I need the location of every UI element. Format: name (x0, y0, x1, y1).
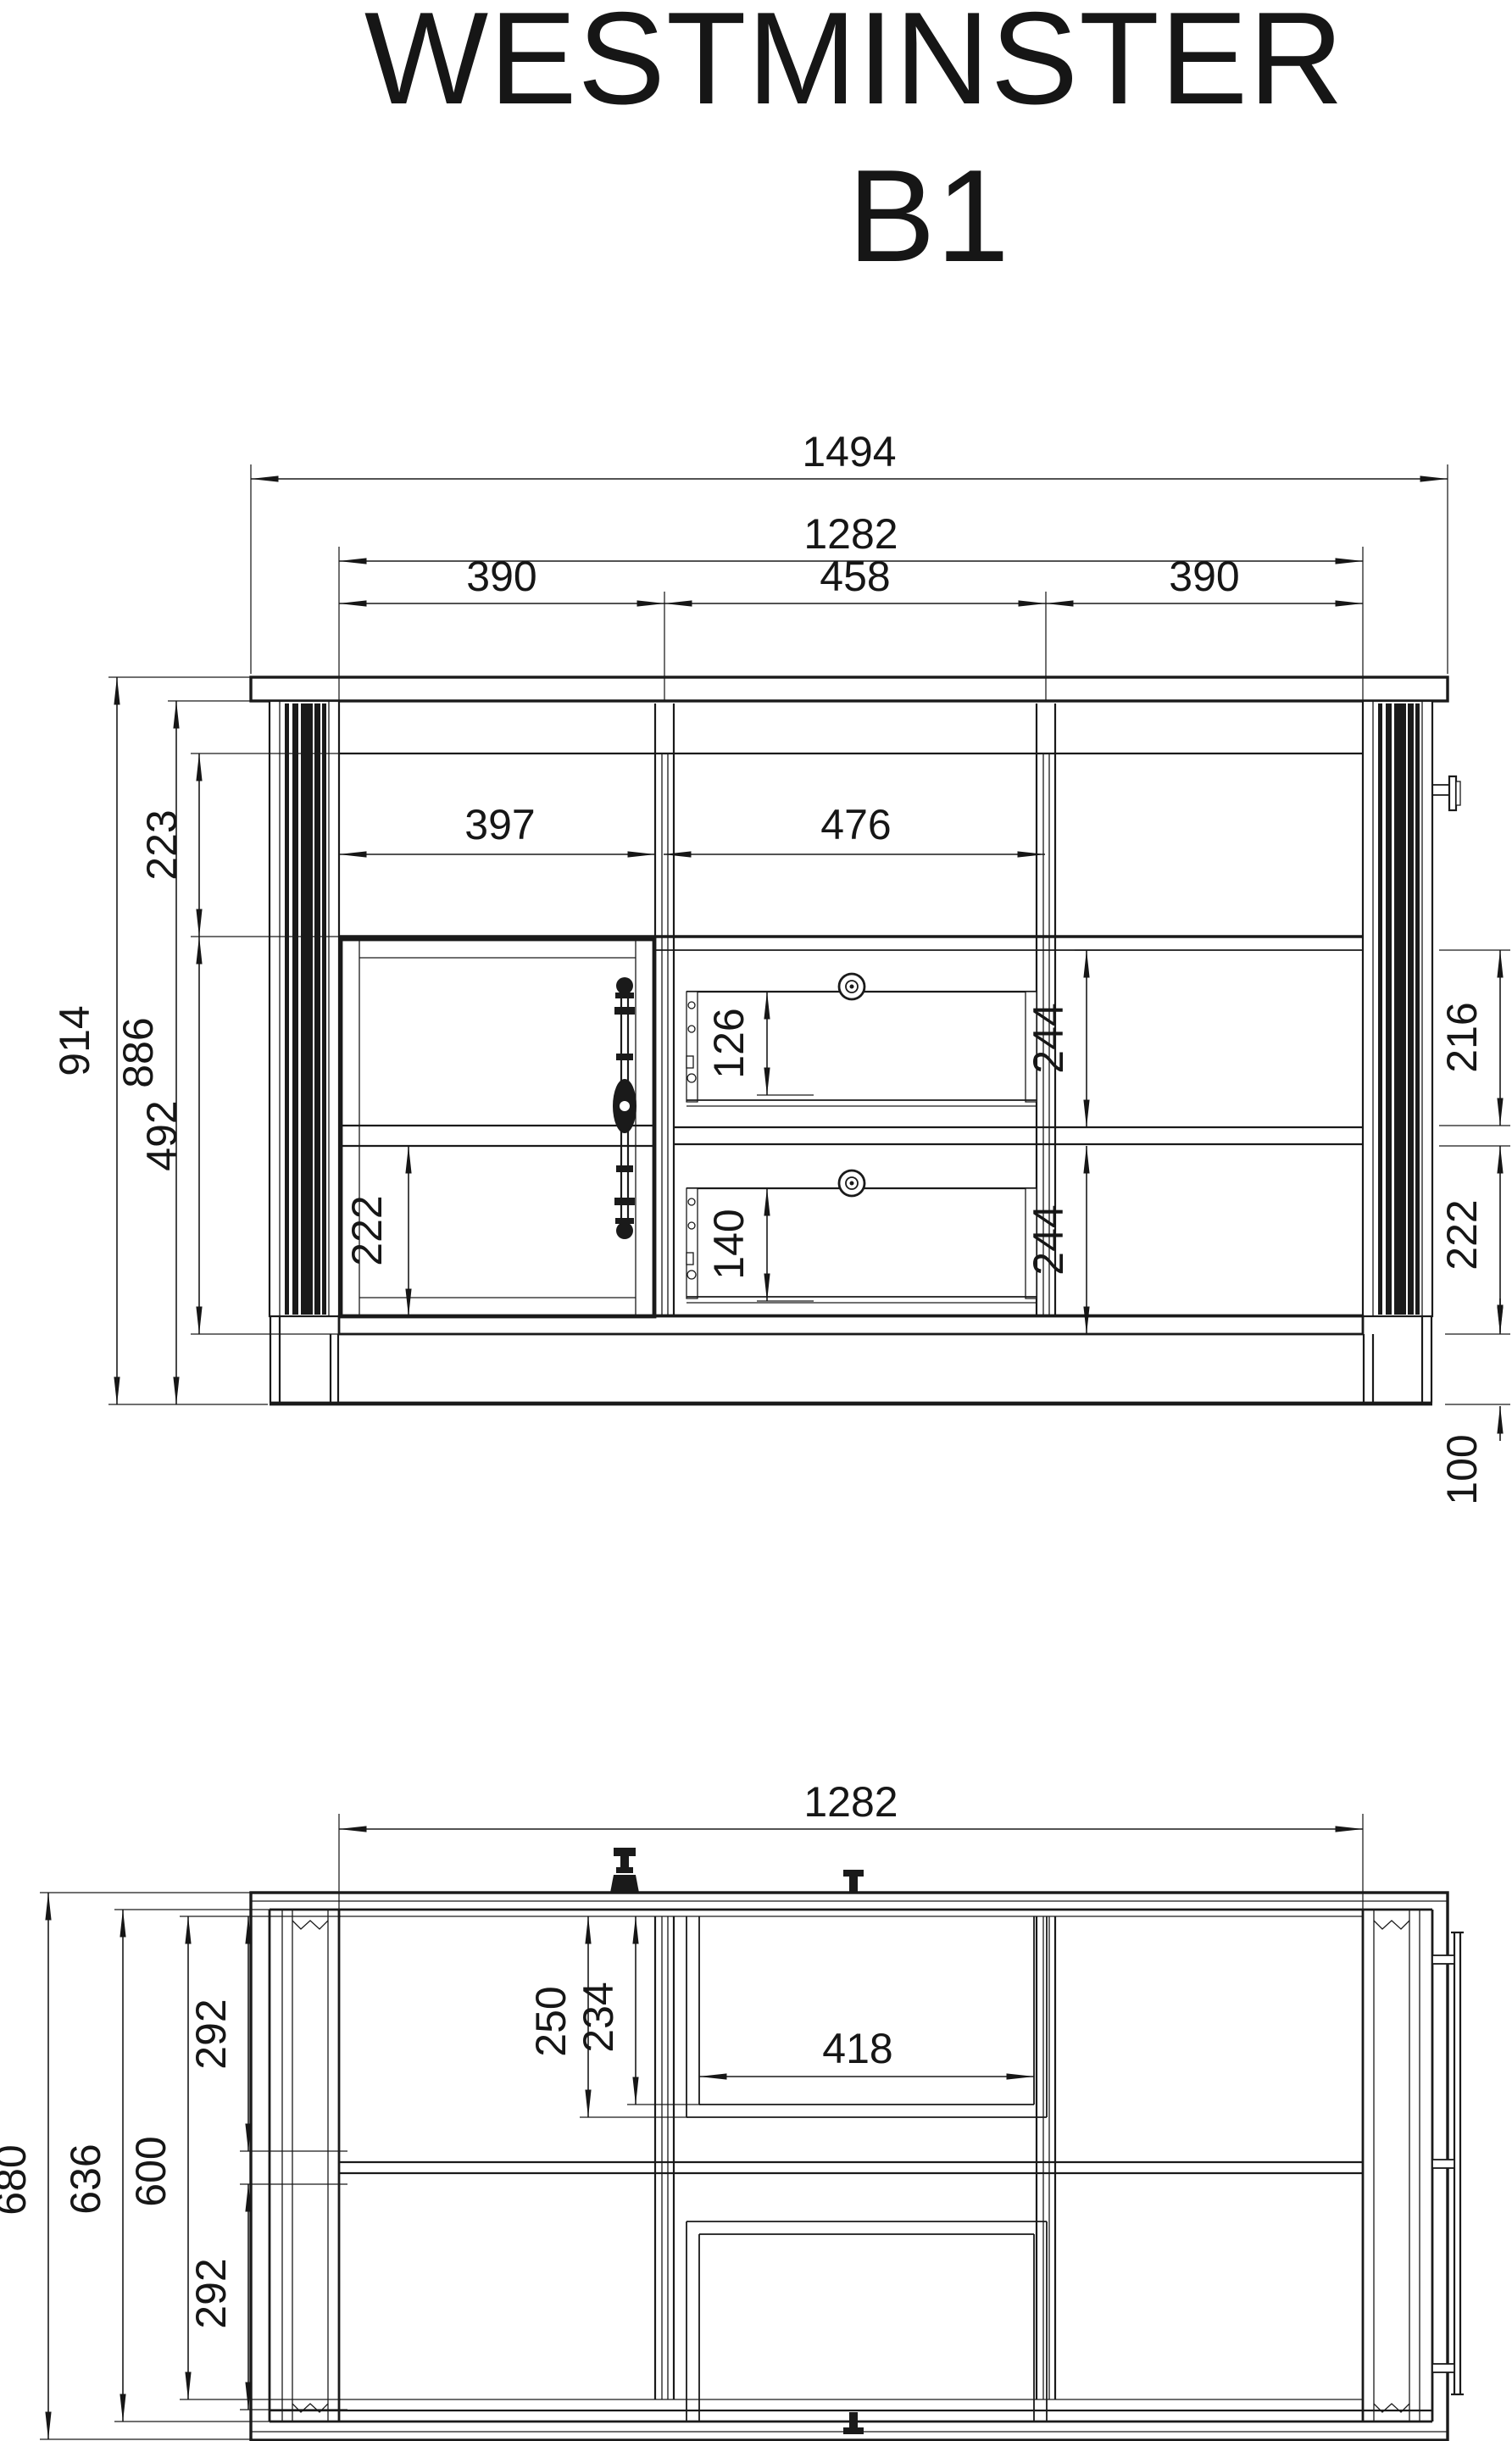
dim-front-side-upper: 216 (1438, 1002, 1486, 1072)
dim-front-right-upper: 244 (1025, 1003, 1072, 1073)
technical-drawing-page: WESTMINSTER B1 (0, 0, 1512, 2441)
title-line1: WESTMINSTER (364, 0, 1344, 131)
dim-front-body-height: 886 (114, 1017, 162, 1087)
rail-bracket-icon (1432, 1955, 1454, 1964)
dim-front-section-left: 390 (466, 553, 536, 600)
dim-front-center-opening: 476 (820, 801, 891, 848)
rail-bracket-icon (1432, 2364, 1454, 2372)
dim-front-side-lower: 222 (1438, 1199, 1486, 1270)
drawer-knob-icon (839, 1170, 864, 1196)
drawer-knob-icon (839, 974, 864, 999)
right-pilaster-icon (1363, 701, 1432, 1316)
dim-front-total-width: 1494 (802, 428, 896, 475)
plan-view: 1282 680 636 600 292 292 (0, 1778, 1464, 2440)
dim-front-inner-width: 1282 (803, 510, 898, 558)
dim-front-total-height: 914 (51, 1005, 98, 1076)
dim-plan-upper-half: 292 (187, 1999, 235, 2069)
dim-plan-body-depth: 636 (62, 2144, 109, 2214)
dim-front-right-lower: 244 (1025, 1204, 1072, 1275)
dim-plan-lower-half: 292 (187, 2258, 235, 2328)
dim-front-door-lower-panel: 222 (343, 1195, 391, 1265)
dim-front-plinth: 100 (1438, 1434, 1486, 1504)
dim-plan-inner-depth: 600 (127, 2136, 175, 2206)
dim-front-left-opening: 397 (464, 801, 535, 848)
dim-front-door-height: 492 (138, 1100, 186, 1170)
plan-countertop (251, 1893, 1448, 2440)
drawing-title: WESTMINSTER B1 (364, 0, 1344, 289)
dim-plan-inner-width: 1282 (803, 1778, 898, 1826)
dim-plan-drawer-inner-width: 418 (822, 2025, 892, 2072)
plan-drawer-knob-icon (843, 1870, 864, 1893)
plan-door-handle-icon (610, 1848, 639, 1893)
dim-plan-drawer-outer-depth: 250 (527, 1986, 575, 2056)
bottom-board (339, 1316, 1363, 1334)
rail-bracket-icon (1432, 2160, 1454, 2168)
front-view: 1494 1282 390 458 390 397 476 914 (51, 428, 1510, 1505)
plan-structure (251, 1893, 1448, 2440)
dim-front-upper-drawer: 126 (705, 1008, 753, 1078)
dim-front-section-center: 458 (820, 553, 890, 600)
side-rail-bracket-icon (1432, 776, 1460, 810)
countertop (251, 677, 1448, 701)
dim-plan-drawer-inner-depth: 234 (575, 1982, 622, 2052)
drawing-svg: WESTMINSTER B1 (0, 0, 1512, 2441)
dim-front-top-niche: 223 (138, 809, 186, 880)
dim-front-section-right: 390 (1169, 553, 1239, 600)
title-line2: B1 (848, 142, 1010, 289)
left-pilaster-icon (270, 701, 339, 1316)
dim-front-lower-drawer: 140 (705, 1209, 753, 1279)
dim-plan-total-depth: 680 (0, 2144, 35, 2215)
